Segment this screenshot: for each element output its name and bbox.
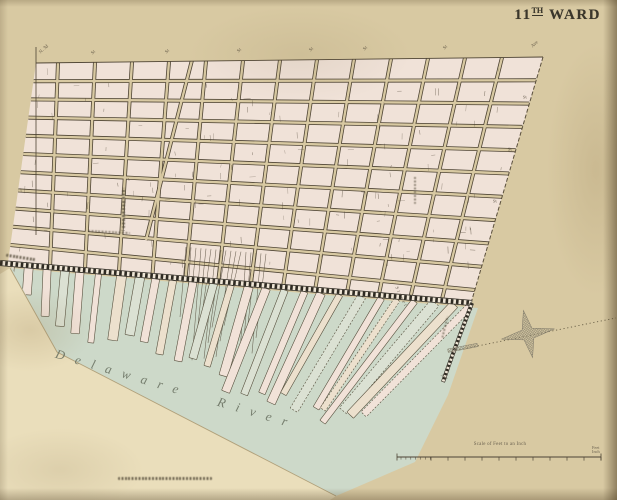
scale-end-labels: Feet Inch (592, 447, 600, 454)
ward-word: WARD (549, 7, 601, 23)
ward-ordinal: TH (532, 6, 544, 16)
map-title: 11THWARD (514, 6, 601, 24)
ward-number: 11 (514, 7, 531, 23)
scale-end-bottom: Inch (592, 451, 600, 455)
scale-bar (397, 454, 601, 461)
atlas-page: 11THWARD Delaware River N. 3dStStStStStS… (0, 0, 617, 500)
street-end-label-right: St (493, 199, 497, 204)
street-end-label-right: St (508, 147, 512, 152)
compass-star (497, 305, 559, 362)
street-end-label-right: St (523, 95, 527, 100)
imprint-text-smudge (118, 477, 212, 480)
street-name-smudge-1 (122, 188, 125, 228)
scale-caption: Scale of Feet to an Inch (461, 442, 540, 447)
